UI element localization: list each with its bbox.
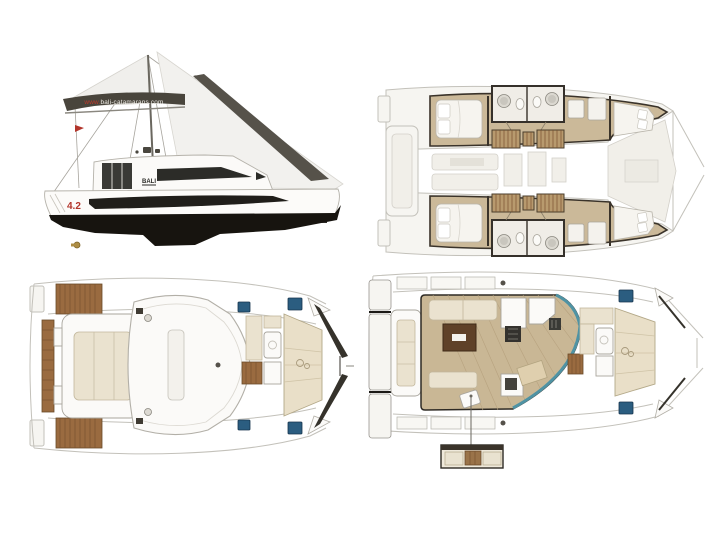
mast-foot-hardware <box>135 147 160 154</box>
hatch-icon <box>238 302 250 312</box>
lower-deck-plan <box>370 74 710 274</box>
exterior-deck-plan <box>18 270 356 462</box>
bow-structure <box>655 288 685 418</box>
winch-icon <box>501 421 506 426</box>
winch-icon <box>145 315 152 322</box>
forward-cockpit <box>242 314 322 416</box>
aft-cabin-bed <box>436 100 482 138</box>
cabin-brand-logo: BALI <box>142 179 156 185</box>
forward-table <box>596 328 613 354</box>
saloon-bench <box>429 372 477 388</box>
main-deck-plan <box>363 262 715 474</box>
side-profile-view: www.bali-catamarans.com BALI 4.2 BALI <box>5 48 350 276</box>
bow-sunpad <box>615 308 655 396</box>
forward-cockpit <box>568 290 655 414</box>
coachroof <box>128 295 250 434</box>
hatch-icon <box>619 402 633 414</box>
hatch-icon <box>288 298 302 310</box>
sliding-door-glass <box>102 163 132 189</box>
forward-table <box>264 332 281 358</box>
hatch-icon <box>238 420 250 430</box>
hatch-icon <box>619 290 633 302</box>
roof-fitting <box>136 418 143 424</box>
saloon <box>421 295 581 410</box>
aft-cockpit-lounge <box>54 314 140 418</box>
toilet-icon <box>533 97 541 108</box>
transom-steps <box>369 280 391 438</box>
hatch-icon <box>288 422 302 434</box>
red-pennant <box>75 125 84 132</box>
model-badge: 4.2 <box>67 201 81 212</box>
roof-fitting <box>136 308 143 314</box>
aft-cockpit-bench <box>391 310 421 396</box>
hull-stairs <box>492 130 564 148</box>
winch-icon <box>145 409 152 416</box>
toilet-icon <box>516 99 524 110</box>
sink-icon <box>549 318 561 330</box>
winch-icon <box>501 281 506 286</box>
sail-url-text: www.bali-catamarans.com <box>83 99 163 106</box>
mast-foot <box>216 363 221 368</box>
